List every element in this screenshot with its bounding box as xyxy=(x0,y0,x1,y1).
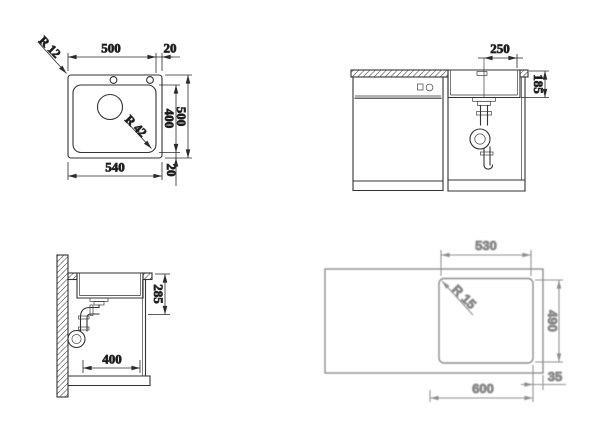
dim-label-edge-top: 20 xyxy=(164,41,177,56)
dim-label-edge-offset: 35 xyxy=(548,369,562,384)
dim-label-bowl-width: 500 xyxy=(101,41,121,56)
wall-hatch xyxy=(57,255,68,397)
dim-cutout-depth: 490 xyxy=(535,280,563,362)
radius-corner-label: R 12 xyxy=(36,34,63,61)
dim-label-center-to-edge: 250 xyxy=(490,41,510,56)
radius-cutout-callout: R 15 xyxy=(442,281,479,315)
dim-label-clearance: 285 xyxy=(151,284,166,304)
siphon-trap-icon xyxy=(68,331,85,348)
dim-bowl-width: 500 xyxy=(68,41,156,74)
dim-cabinet-width: 600 xyxy=(430,381,533,402)
dim-base-depth: 400 xyxy=(83,352,140,374)
dim-cutout-width: 530 xyxy=(441,238,531,276)
dim-label-overall-width: 540 xyxy=(105,160,125,175)
dim-label-cutout-width: 530 xyxy=(475,238,497,253)
radius-cutout-label: R 15 xyxy=(449,282,479,312)
dim-label-base-depth: 400 xyxy=(102,352,122,367)
dim-overall-width: 540 xyxy=(68,160,162,181)
dim-clearance: 285 xyxy=(148,274,170,315)
side-view: 285 400 xyxy=(57,255,170,397)
dim-edge-bottom: 20 xyxy=(164,153,179,187)
plan-view: 500 20 400 500 20 xyxy=(36,34,192,186)
radius-bowl-callout: R 42 xyxy=(122,113,151,149)
base-cabinets-front xyxy=(353,77,525,191)
dim-label-bowl-height: 185 xyxy=(531,74,546,94)
front-view: 250 185 xyxy=(351,41,549,191)
dim-edge-top: 20 xyxy=(156,41,180,72)
technical-drawing-sheet: 500 20 400 500 20 xyxy=(0,0,602,445)
dim-label-cutout-depth: 490 xyxy=(545,310,560,332)
drain-assembly-side xyxy=(68,298,108,348)
sink-outline xyxy=(68,75,162,158)
countertop-outline xyxy=(325,269,543,373)
radius-corner-callout: R 12 xyxy=(36,34,66,74)
dim-label-edge-bottom: 20 xyxy=(164,164,179,177)
dim-label-cabinet-width: 600 xyxy=(472,381,494,396)
dim-label-overall-depth: 500 xyxy=(174,107,189,127)
tap-hole-icon xyxy=(110,77,117,84)
tap-hole-icon xyxy=(147,77,154,84)
drain-assembly-front xyxy=(470,98,496,170)
bowl-section xyxy=(448,58,520,98)
cutout-view: 530 R 15 490 35 600 xyxy=(325,238,566,402)
drain-hole-icon xyxy=(98,95,123,120)
dishwasher-button-icon xyxy=(418,84,424,90)
countertop-hatch xyxy=(520,70,528,77)
countertop-hatch xyxy=(351,70,448,77)
drain-strainer-icon xyxy=(473,98,496,102)
bowl-section-side xyxy=(77,273,143,298)
dishwasher-knob-icon xyxy=(426,84,433,91)
radius-bowl-label: R 42 xyxy=(122,113,149,140)
dim-center-to-edge: 250 xyxy=(478,41,523,68)
countertop-hatch xyxy=(68,273,77,280)
sink-spec-drawing: 500 20 400 500 20 xyxy=(0,0,602,445)
tap-hole-cover-icon xyxy=(477,72,487,76)
siphon-trap-icon xyxy=(470,129,490,149)
countertop-hatch xyxy=(143,273,152,280)
